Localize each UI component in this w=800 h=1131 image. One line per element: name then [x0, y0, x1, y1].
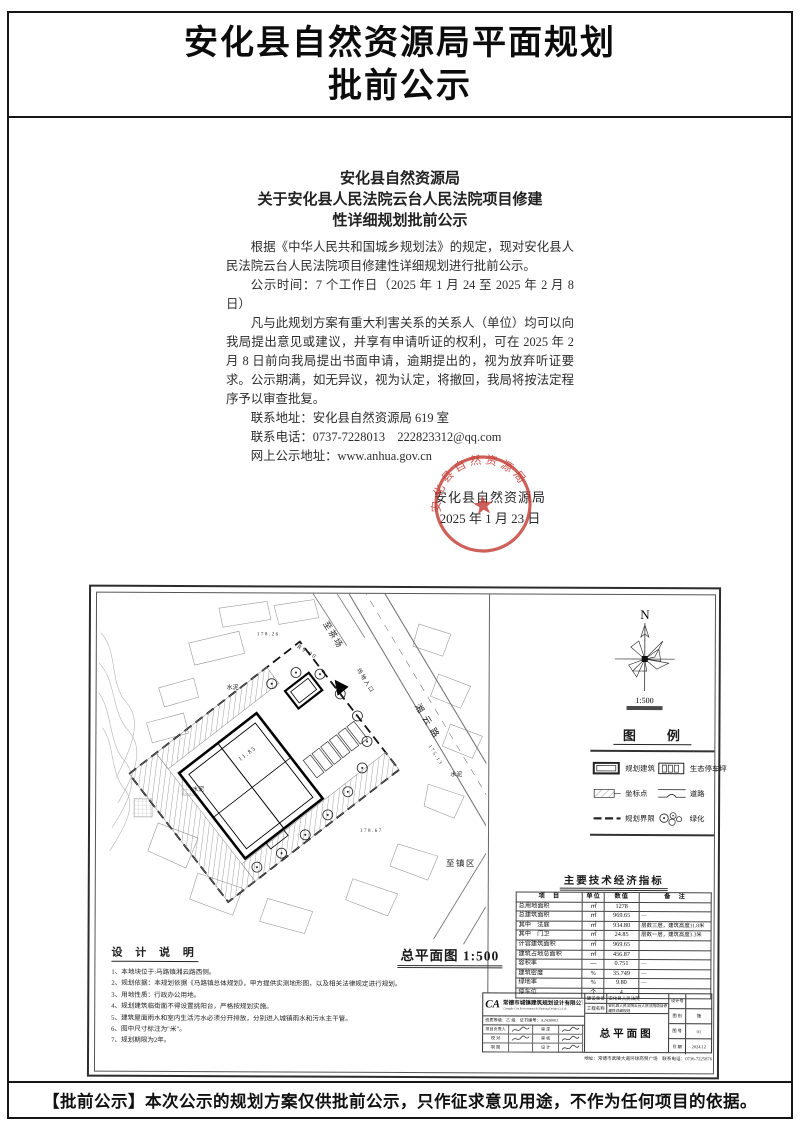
indicator-cell: 总建筑面积 — [516, 911, 582, 921]
indicator-row: 总用地面积㎡1278 — [516, 902, 711, 912]
indicator-cell: 35.749 — [604, 969, 638, 979]
indicator-header: 备 注 — [639, 893, 711, 903]
notice-paragraph-basis: 根据《中华人民共和国城乡规划法》的规定，现对安化县人民法院云台人民法院项目修建性… — [226, 238, 574, 276]
sheet-info-row: 图 别施 — [669, 1009, 712, 1024]
signature-grid: 项目负责人审 定校 对审 核制 图设 计 — [483, 1025, 584, 1052]
legend-title: 图 例 — [614, 728, 691, 745]
indicator-header: 单位 — [583, 892, 605, 902]
map-label: 水泥 — [192, 785, 204, 793]
indicator-cell: 绿地率 — [516, 978, 582, 988]
signature-mark — [509, 1034, 533, 1043]
indicator-cell: 0.751 — [604, 960, 638, 970]
indicator-cell — [639, 940, 711, 950]
notice-paragraph-rights: 凡与此规划方案有重大利害关系的关系人（单位）均可以向我局提出意见或建议，并享有申… — [226, 314, 574, 409]
indicator-cell: 24.85 — [604, 931, 638, 941]
sheet-info-row: 设计号 — [669, 994, 712, 1009]
indicator-cell: 容积率 — [516, 959, 582, 969]
indicator-cell: 1278 — [605, 902, 639, 912]
scale-label: 1:500 — [635, 696, 653, 705]
firm-address-line: 地址：常德市武陵大道环球商贸广场 联系电话：0736-7225876 — [482, 1055, 712, 1062]
design-note-line: 4、规划建筑临街面不得设置挑阳台，严格按规划实施。 — [111, 1001, 437, 1014]
site-plan-map: 至茶场湘 云 路至镇区水泥水泥水泥R9.00场地入口175.13178.2611… — [98, 593, 488, 947]
indicator-cell: ㎡ — [582, 902, 604, 912]
owner-label: 建设单位 — [585, 994, 607, 1003]
indicator-row: 总建筑面积㎡969.65— — [516, 911, 711, 921]
signature-label: 设 计 — [533, 1044, 559, 1053]
legend-item-coord: 坐标点 — [592, 785, 655, 801]
indicator-header: 数值 — [605, 892, 639, 902]
signature-label: 制 图 — [483, 1043, 509, 1052]
indicator-cell: ㎡ — [582, 931, 604, 941]
indicator-cell: — — [638, 969, 710, 979]
legend-road-icon — [657, 785, 687, 801]
design-firm-logo: CA — [485, 999, 500, 1010]
owner-value: 安化县人民法院 — [607, 994, 668, 1003]
indicator-cell: 其中 法庭 — [516, 921, 582, 931]
design-notes-title: 设 计 说 明 — [111, 944, 198, 962]
signature-mark — [559, 1035, 583, 1044]
north-arrow: N 1:500 — [603, 605, 687, 713]
notice-paragraph-period: 公示时间：7 个工作日（2025 年 1 月 24 至 2025 年 2 月 8… — [226, 276, 574, 314]
footer-disclaimer: 【批前公示】本次公示的规划方案仅供批前公示，只作征求意见用途，不作为任何项目的依… — [43, 1088, 757, 1112]
indicator-cell: — — [582, 959, 604, 969]
sheet-info-row: 图 号01 — [669, 1024, 712, 1039]
signature-mark — [509, 1043, 533, 1052]
legend: 图 例 规划建筑生态停车坪坐标点道路规划界限绿化 — [590, 725, 714, 837]
indicator-row: 其中 门卫㎡24.85层数一层，建筑高度3.3米 — [516, 930, 711, 940]
sheet-info-grid: 设计号图 别施图 号01日 期2024.12 — [669, 994, 712, 1052]
signature-label: 审 定 — [533, 1026, 559, 1035]
indicator-cell — [639, 950, 711, 960]
page-footer: 【批前公示】本次公示的规划方案仅供批前公示，只作征求意见用途，不作为任何项目的依… — [9, 1081, 791, 1117]
indicator-row: 计容建筑面积㎡969.65 — [516, 940, 711, 950]
indicator-cell: — — [638, 979, 710, 989]
indicator-cell: 456.87 — [604, 950, 638, 960]
notice-letter: 安化县自然资源局 关于安化县人民法院云台人民法院项目修建 性详细规划批前公示 根… — [226, 168, 574, 466]
legend-building-icon — [592, 760, 622, 776]
indicator-cell: 层数三层，建筑高度11.8米 — [639, 921, 711, 931]
indicator-cell: 9.80 — [604, 979, 638, 989]
design-note-line: 7、规划期限为2年。 — [111, 1035, 437, 1048]
indicator-cell: % — [582, 979, 604, 989]
title-block: CA 常德市城镇建筑规划设计有限公司 Changde City Environm… — [482, 992, 712, 1053]
legend-item-green: 绿化 — [657, 810, 727, 826]
legend-boundary-icon — [592, 810, 622, 826]
seal-star-icon: ★ — [470, 489, 496, 521]
map-label: 178.26 — [257, 632, 280, 637]
indicator-cell: ㎡ — [582, 911, 604, 921]
legend-item-boundary: 规划界限 — [592, 810, 655, 826]
signature-mark — [509, 1025, 533, 1034]
page-title-line1: 安化县自然资源局平面规划 — [184, 22, 616, 65]
indicator-cell: 层数一层，建筑高度3.3米 — [639, 931, 711, 941]
site-plan-sheet: 至茶场湘 云 路至镇区水泥水泥水泥R9.00场地入口175.13178.2611… — [87, 585, 721, 1080]
contour-lines — [98, 633, 137, 851]
design-firm-name-en: Changde City Environment & Planning Desi… — [503, 1007, 574, 1011]
sheet-info-row: 日 期2024.12 — [669, 1039, 712, 1054]
indicator-cell: 969.65 — [604, 940, 638, 950]
notice-heading-line2: 关于安化县人民法院云台人民法院项目修建 — [226, 189, 574, 210]
legend-coord-icon — [592, 785, 622, 801]
indicator-cell: ㎡ — [582, 921, 604, 931]
indicators-table: 项 目单位数值备 注 总用地面积㎡1278总建筑面积㎡969.65—其中 法庭㎡… — [515, 891, 711, 998]
map-label: 湘 云 路 — [413, 701, 443, 740]
indicator-cell: ㎡ — [582, 950, 604, 960]
indicators-panel: 主要技术经济指标 项 目单位数值备 注 总用地面积㎡1278总建筑面积㎡969.… — [515, 870, 712, 998]
indicator-cell: 969.65 — [605, 912, 639, 922]
design-firm-name-cn: 常德市城镇建筑规划设计有限公司 — [503, 998, 582, 1006]
notice-heading-line3: 性详细规划批前公示 — [226, 210, 574, 231]
indicator-cell: % — [582, 969, 604, 979]
indicator-cell: — — [639, 960, 711, 970]
map-label: 场地入口 — [355, 667, 377, 695]
signature-label: 校 对 — [483, 1034, 509, 1043]
indicator-cell: — — [639, 912, 711, 922]
legend-green-icon — [657, 810, 687, 826]
indicator-cell: ㎡ — [582, 940, 604, 950]
design-notes: 设 计 说 明 1、本地块位于:马路镇湘云路西侧。2、规划依据：本规划依据《马路… — [111, 943, 437, 1048]
indicator-cell — [639, 902, 711, 912]
legend-item-road: 道路 — [657, 785, 727, 801]
project-label: 工程名称 — [585, 1004, 607, 1013]
entrance-arrow-icon — [335, 680, 349, 696]
signature-label: 项目负责人 — [483, 1025, 509, 1034]
legend-parking-icon — [657, 760, 687, 776]
signature-mark — [559, 1026, 583, 1035]
page-header: 安化县自然资源局平面规划 批前公示 — [9, 13, 791, 118]
north-label: N — [640, 607, 650, 622]
indicator-cell: 建筑占地总面积 — [516, 950, 582, 960]
legend-items: 规划建筑生态停车坪坐标点道路规划界限绿化 — [590, 750, 714, 837]
signature-mark — [559, 1044, 583, 1053]
signature-label: 审 核 — [533, 1035, 559, 1044]
indicator-cell: 934.80 — [605, 921, 639, 931]
official-seal-icon: 安化县自然资源局 ★ — [418, 442, 547, 566]
project-value: 安化县人民法院云台人民法院项目修建性详细规划 — [607, 1004, 668, 1013]
page-title-line2: 批前公示 — [328, 65, 472, 108]
map-label: 178.67 — [360, 829, 383, 834]
indicator-cell: 建筑密度 — [516, 969, 582, 979]
contact-address: 联系地址：安化县自然资源局 619 室 — [226, 409, 574, 428]
legend-item-building: 规划建筑 — [592, 760, 655, 776]
map-label: R9.00 — [296, 644, 318, 661]
indicators-title: 主要技术经济指标 — [560, 876, 668, 891]
indicator-row: 建筑占地总面积㎡456.87 — [516, 950, 711, 960]
legend-item-parking: 生态停车坪 — [657, 760, 727, 776]
map-label: 水泥 — [450, 770, 462, 778]
plan-title: 总平面图 1:500 — [397, 944, 502, 965]
map-label: 水泥 — [227, 683, 239, 691]
notice-heading-line1: 安化县自然资源局 — [226, 168, 574, 189]
indicator-cell: 计容建筑面积 — [516, 940, 582, 950]
indicator-cell: 总用地面积 — [516, 902, 582, 912]
indicator-header: 项 目 — [516, 892, 582, 902]
qualification-line: 资质等级：乙 级 证书编号：A2430003 — [483, 1016, 584, 1025]
sheet-name: 总平面图 — [585, 1014, 668, 1053]
map-label: 至茶场 — [321, 619, 345, 650]
map-label: 至镇区 — [446, 858, 476, 868]
indicator-cell: 其中 门卫 — [516, 930, 582, 940]
